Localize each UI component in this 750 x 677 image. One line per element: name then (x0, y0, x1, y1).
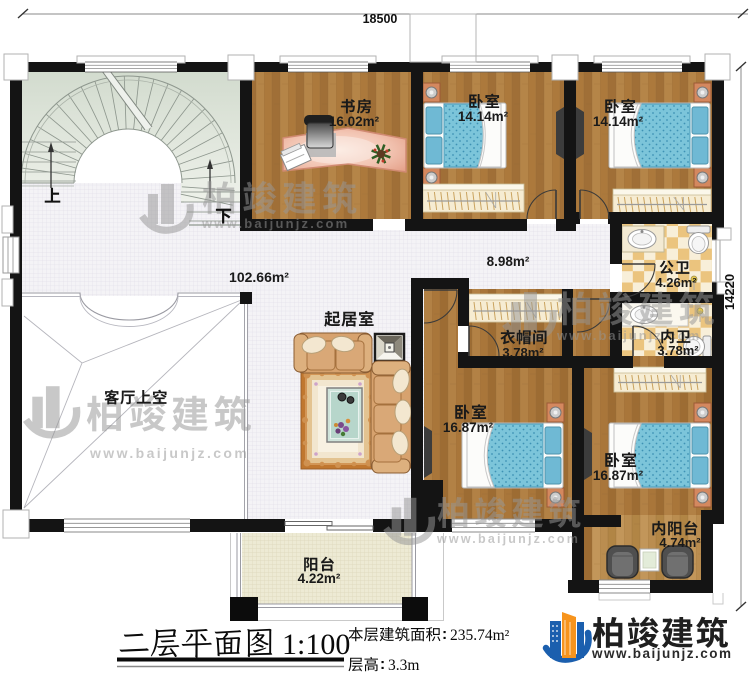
svg-text:4.26m²: 4.26m² (655, 275, 697, 290)
svg-text:www.baijunjz.com: www.baijunjz.com (556, 328, 701, 343)
svg-text:14.14m²: 14.14m² (458, 109, 509, 124)
svg-text:16.87m²: 16.87m² (443, 420, 494, 435)
svg-text:4.74m²: 4.74m² (659, 535, 701, 550)
svg-text:3.78m²: 3.78m² (657, 343, 699, 358)
svg-text::: : (442, 626, 447, 643)
svg-text:www.baijunjz.com: www.baijunjz.com (591, 646, 733, 661)
svg-text:16.87m²: 16.87m² (593, 468, 644, 483)
svg-text:8.98m²: 8.98m² (487, 254, 530, 269)
svg-text:3.3m: 3.3m (388, 657, 419, 674)
svg-text:www.baijunjz.com: www.baijunjz.com (436, 532, 580, 546)
svg-text:102.66m²: 102.66m² (229, 269, 289, 285)
svg-text:14220: 14220 (722, 274, 737, 310)
svg-text:3.78m²: 3.78m² (502, 345, 544, 360)
svg-text:235.74m²: 235.74m² (450, 627, 510, 644)
svg-text:www.baijunjz.com: www.baijunjz.com (89, 445, 249, 461)
svg-text:4.22m²: 4.22m² (298, 571, 341, 586)
svg-text::: : (380, 656, 385, 673)
svg-text:18500: 18500 (363, 12, 398, 26)
svg-text:14.14m²: 14.14m² (593, 114, 644, 129)
svg-text:16.02m²: 16.02m² (329, 114, 380, 129)
svg-text:1:100: 1:100 (282, 628, 350, 661)
